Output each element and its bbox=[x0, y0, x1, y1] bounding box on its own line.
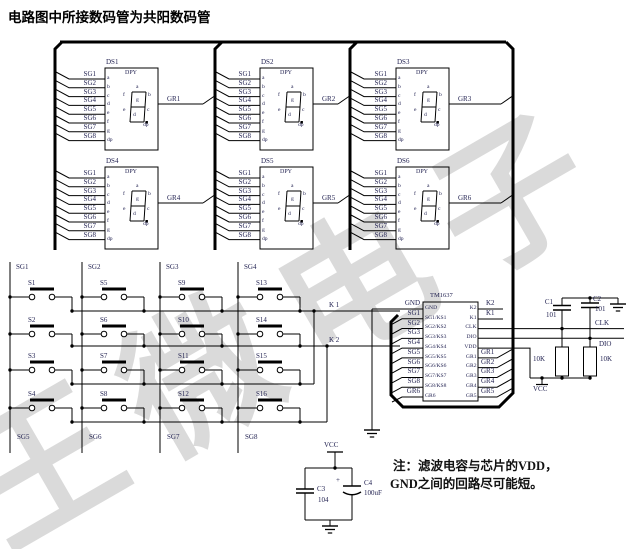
segment-letter: g bbox=[291, 197, 294, 203]
chip-pin-label-left: GND bbox=[425, 306, 437, 312]
display-pin-letter: g bbox=[262, 129, 265, 135]
chip-wire-label: GR3 bbox=[481, 368, 494, 375]
display-pin-letter: dp bbox=[262, 138, 268, 144]
sg-wire-label: SG8 bbox=[84, 232, 96, 239]
switch-label: S4 bbox=[28, 391, 35, 398]
gr-wire-label: GR4 bbox=[167, 195, 180, 202]
sg-wire-label: SG7 bbox=[375, 223, 387, 230]
segment-letter: e bbox=[123, 207, 125, 213]
sg-wire-label: SG4 bbox=[375, 97, 387, 104]
segment-letter: c bbox=[147, 108, 149, 114]
sg-wire-label: SG1 bbox=[84, 170, 96, 177]
segment-letter: e bbox=[278, 108, 280, 114]
chip-wire-label: GR6 bbox=[407, 388, 420, 395]
segment-letter: d bbox=[424, 113, 427, 119]
sg-wire-label: SG5 bbox=[84, 106, 96, 113]
segment-letter: b bbox=[439, 93, 442, 99]
display-pin-letter: d bbox=[107, 201, 110, 207]
segment-letter: f bbox=[414, 192, 416, 198]
segment-letter: d bbox=[288, 113, 291, 119]
segment-letter: c bbox=[438, 207, 440, 213]
display-pin-letter: b bbox=[398, 85, 401, 91]
switch-label: S2 bbox=[28, 317, 35, 324]
display-pin-letter: g bbox=[262, 228, 265, 234]
chip-pin-label-right: CLK bbox=[465, 325, 476, 331]
cap-designator: C4 bbox=[364, 480, 372, 487]
sg-wire-label: SG5 bbox=[375, 205, 387, 212]
segment-letter: e bbox=[123, 108, 125, 114]
keypad-col-top-label: SG3 bbox=[166, 264, 178, 271]
gr-wire-label: GR2 bbox=[322, 96, 335, 103]
vcc-label: VCC bbox=[324, 442, 338, 449]
segment-letter: c bbox=[302, 207, 304, 213]
segment-letter: a bbox=[427, 184, 429, 190]
display-pin-letter: d bbox=[107, 102, 110, 108]
segment-letter: b bbox=[439, 192, 442, 198]
chip-pin-label-left: SG1/KS1 bbox=[425, 316, 446, 322]
display-pin-letter: dp bbox=[107, 138, 113, 144]
cap-value: 104 bbox=[318, 497, 329, 504]
k1-label: K 1 bbox=[329, 302, 339, 309]
display-type-label: DPY bbox=[280, 169, 292, 175]
dio-net-label: DIO bbox=[599, 341, 611, 348]
chip-pin-label-left: SG2/KS2 bbox=[425, 325, 446, 331]
display-pin-letter: a bbox=[262, 76, 264, 82]
sg-wire-label: SG5 bbox=[375, 106, 387, 113]
display-pin-letter: g bbox=[107, 129, 110, 135]
sg-wire-label: SG4 bbox=[239, 196, 251, 203]
segment-letter: c bbox=[147, 207, 149, 213]
chip-wire-label: K2 bbox=[486, 300, 495, 307]
segment-letter: d bbox=[424, 212, 427, 218]
cap-designator: C2 bbox=[593, 296, 601, 303]
sg-wire-label: SG8 bbox=[375, 232, 387, 239]
sg-wire-label: SG1 bbox=[239, 71, 251, 78]
display-pin-letter: f bbox=[262, 120, 264, 126]
sg-wire-label: SG4 bbox=[375, 196, 387, 203]
display-pin-letter: d bbox=[262, 102, 265, 108]
segment-letter: dp bbox=[143, 123, 149, 129]
chip-wire-label: SG1 bbox=[408, 310, 420, 317]
sg-wire-label: SG3 bbox=[239, 188, 251, 195]
display-pin-letter: f bbox=[107, 219, 109, 225]
keypad-col-top-label: SG2 bbox=[88, 264, 100, 271]
display-pin-letter: f bbox=[262, 219, 264, 225]
display-pin-letter: c bbox=[398, 94, 400, 100]
sg-wire-label: SG3 bbox=[375, 188, 387, 195]
display-pin-letter: a bbox=[398, 175, 400, 181]
switch-label: S7 bbox=[100, 353, 107, 360]
chip-wire-label: SG5 bbox=[408, 349, 420, 356]
display-designator: DS1 bbox=[106, 59, 118, 66]
display-pin-letter: e bbox=[398, 111, 400, 117]
switch-label: S14 bbox=[256, 317, 267, 324]
chip-wire-label: SG4 bbox=[408, 339, 420, 346]
keypad-col-bottom-label: SG5 bbox=[17, 434, 29, 441]
segment-letter: c bbox=[302, 108, 304, 114]
keypad-col-bottom-label: SG7 bbox=[167, 434, 179, 441]
gr-wire-label: GR6 bbox=[458, 195, 471, 202]
display-pin-letter: dp bbox=[262, 237, 268, 243]
sg-wire-label: SG4 bbox=[84, 196, 96, 203]
clk-net-label: CLK bbox=[595, 320, 609, 327]
segment-letter: c bbox=[438, 108, 440, 114]
chip-wire-label: SG7 bbox=[408, 368, 420, 375]
sg-wire-label: SG3 bbox=[84, 188, 96, 195]
k2-label: K 2 bbox=[329, 337, 339, 344]
display-pin-letter: a bbox=[107, 175, 109, 181]
note-line-1: 注：滤波电容与芯片的VDD， bbox=[393, 455, 558, 474]
display-pin-letter: e bbox=[107, 111, 109, 117]
switch-label: S16 bbox=[256, 391, 267, 398]
sg-wire-label: SG4 bbox=[84, 97, 96, 104]
segment-letter: f bbox=[278, 93, 280, 99]
sg-wire-label: SG6 bbox=[239, 115, 251, 122]
switch-label: S15 bbox=[256, 353, 267, 360]
sg-wire-label: SG3 bbox=[375, 89, 387, 96]
display-pin-letter: f bbox=[398, 219, 400, 225]
sg-wire-label: SG6 bbox=[375, 115, 387, 122]
sg-wire-label: SG6 bbox=[375, 214, 387, 221]
display-pin-letter: e bbox=[398, 210, 400, 216]
sg-wire-label: SG6 bbox=[84, 214, 96, 221]
sg-wire-label: SG7 bbox=[84, 223, 96, 230]
segment-letter: e bbox=[278, 207, 280, 213]
display-pin-letter: c bbox=[107, 94, 109, 100]
switch-label: S5 bbox=[100, 280, 107, 287]
display-pin-letter: c bbox=[107, 193, 109, 199]
display-pin-letter: c bbox=[398, 193, 400, 199]
segment-letter: d bbox=[288, 212, 291, 218]
display-pin-letter: g bbox=[398, 228, 401, 234]
switch-label: S10 bbox=[178, 317, 189, 324]
display-pin-letter: e bbox=[262, 210, 264, 216]
sg-wire-label: SG1 bbox=[375, 170, 387, 177]
segment-letter: a bbox=[136, 184, 138, 190]
chip-pin-label-right: GR1 bbox=[466, 355, 477, 361]
chip-pin-label-left: GR6 bbox=[425, 394, 436, 400]
display-pin-letter: f bbox=[398, 120, 400, 126]
sg-wire-label: SG8 bbox=[375, 133, 387, 140]
chip-pin-label-left: SG6/KS6 bbox=[425, 364, 446, 370]
sg-wire-label: SG3 bbox=[239, 89, 251, 96]
chip-pin-label-right: GR3 bbox=[466, 374, 477, 380]
display-pin-letter: a bbox=[262, 175, 264, 181]
chip-pin-label-right: VDD bbox=[464, 345, 476, 351]
sg-wire-label: SG1 bbox=[84, 71, 96, 78]
cap-designator: C1 bbox=[545, 299, 553, 306]
chip-wire-label: GND bbox=[405, 300, 420, 307]
segment-letter: f bbox=[278, 192, 280, 198]
segment-letter: f bbox=[123, 93, 125, 99]
display-type-label: DPY bbox=[416, 169, 428, 175]
display-pin-letter: b bbox=[262, 184, 265, 190]
segment-letter: dp bbox=[143, 222, 149, 228]
segment-letter: g bbox=[136, 98, 139, 104]
segment-letter: f bbox=[123, 192, 125, 198]
chip-wire-label: GR5 bbox=[481, 388, 494, 395]
sg-wire-label: SG5 bbox=[239, 205, 251, 212]
segment-letter: dp bbox=[434, 222, 440, 228]
chip-wire-label: GR4 bbox=[481, 378, 494, 385]
switch-label: S9 bbox=[178, 280, 185, 287]
switch-label: S3 bbox=[28, 353, 35, 360]
sg-wire-label: SG2 bbox=[239, 80, 251, 87]
switch-label: S8 bbox=[100, 391, 107, 398]
segment-letter: dp bbox=[434, 123, 440, 129]
segment-letter: d bbox=[133, 113, 136, 119]
display-pin-letter: e bbox=[107, 210, 109, 216]
resistor-value: 10K bbox=[600, 356, 612, 363]
display-pin-letter: e bbox=[262, 111, 264, 117]
sg-wire-label: SG7 bbox=[239, 223, 251, 230]
chip-pin-label-right: GR5 bbox=[466, 394, 477, 400]
display-pin-letter: b bbox=[107, 85, 110, 91]
display-pin-letter: c bbox=[262, 193, 264, 199]
vcc-label: VCC bbox=[533, 386, 547, 393]
segment-letter: e bbox=[414, 108, 416, 114]
keypad-col-bottom-label: SG6 bbox=[89, 434, 101, 441]
segment-letter: d bbox=[133, 212, 136, 218]
segment-letter: dp bbox=[298, 123, 304, 129]
display-pin-letter: d bbox=[398, 102, 401, 108]
switch-label: S1 bbox=[28, 280, 35, 287]
chip-wire-label: K1 bbox=[486, 310, 495, 317]
segment-letter: b bbox=[303, 93, 306, 99]
display-type-label: DPY bbox=[125, 70, 137, 76]
switch-label: S12 bbox=[178, 391, 189, 398]
sg-wire-label: SG1 bbox=[375, 71, 387, 78]
display-designator: DS2 bbox=[261, 59, 273, 66]
chip-pin-label-left: SG5/KS5 bbox=[425, 355, 446, 361]
keypad-col-top-label: SG1 bbox=[16, 264, 28, 271]
display-type-label: DPY bbox=[280, 70, 292, 76]
chip-pin-label-left: SG3/KS3 bbox=[425, 335, 446, 341]
segment-letter: e bbox=[414, 207, 416, 213]
chip-pin-label-right: K1 bbox=[470, 316, 477, 322]
switch-label: S11 bbox=[178, 353, 189, 360]
segment-letter: b bbox=[148, 192, 151, 198]
display-pin-letter: g bbox=[398, 129, 401, 135]
switch-label: S13 bbox=[256, 280, 267, 287]
sg-wire-label: SG2 bbox=[239, 179, 251, 186]
segment-letter: a bbox=[291, 184, 293, 190]
chip-wire-label: SG3 bbox=[408, 329, 420, 336]
display-pin-letter: dp bbox=[398, 138, 404, 144]
sg-wire-label: SG2 bbox=[375, 80, 387, 87]
note-line-2: GND之间的回路尽可能短。 bbox=[390, 473, 543, 492]
chip-wire-label: GR2 bbox=[481, 359, 494, 366]
resistor-value: 10K bbox=[533, 356, 545, 363]
display-pin-letter: b bbox=[262, 85, 265, 91]
display-pin-letter: c bbox=[262, 94, 264, 100]
segment-letter: dp bbox=[298, 222, 304, 228]
segment-letter: a bbox=[136, 85, 138, 91]
display-designator: DS6 bbox=[397, 158, 409, 165]
sg-wire-label: SG4 bbox=[239, 97, 251, 104]
display-pin-letter: f bbox=[107, 120, 109, 126]
sg-wire-label: SG6 bbox=[84, 115, 96, 122]
segment-letter: b bbox=[303, 192, 306, 198]
display-pin-letter: b bbox=[398, 184, 401, 190]
chip-pin-label-left: SG4/KS4 bbox=[425, 345, 446, 351]
sg-wire-label: SG8 bbox=[239, 232, 251, 239]
chip-wire-label: SG6 bbox=[408, 359, 420, 366]
sg-wire-label: SG8 bbox=[239, 133, 251, 140]
chip-name: TM1637 bbox=[430, 293, 453, 300]
display-designator: DS3 bbox=[397, 59, 409, 66]
display-pin-letter: b bbox=[107, 184, 110, 190]
keypad-col-bottom-label: SG8 bbox=[245, 434, 257, 441]
sg-wire-label: SG6 bbox=[239, 214, 251, 221]
sg-wire-label: SG7 bbox=[84, 124, 96, 131]
chip-pin-label-right: DIO bbox=[467, 335, 477, 341]
sg-wire-label: SG3 bbox=[84, 89, 96, 96]
display-pin-letter: d bbox=[398, 201, 401, 207]
display-designator: DS5 bbox=[261, 158, 273, 165]
sg-wire-label: SG7 bbox=[239, 124, 251, 131]
polarity-plus: + bbox=[336, 477, 340, 484]
display-pin-letter: d bbox=[262, 201, 265, 207]
sg-wire-label: SG7 bbox=[375, 124, 387, 131]
segment-letter: f bbox=[414, 93, 416, 99]
display-pin-letter: g bbox=[107, 228, 110, 234]
sg-wire-label: SG8 bbox=[84, 133, 96, 140]
sg-wire-label: SG1 bbox=[239, 170, 251, 177]
segment-letter: b bbox=[148, 93, 151, 99]
display-type-label: DPY bbox=[125, 169, 137, 175]
sg-wire-label: SG2 bbox=[84, 80, 96, 87]
sg-wire-label: SG5 bbox=[84, 205, 96, 212]
chip-pin-label-right: GR4 bbox=[466, 384, 477, 390]
display-type-label: DPY bbox=[416, 70, 428, 76]
switch-label: S6 bbox=[100, 317, 107, 324]
chip-wire-label: SG2 bbox=[408, 320, 420, 327]
gr-wire-label: GR5 bbox=[322, 195, 335, 202]
chip-wire-label: SG8 bbox=[408, 378, 420, 385]
cap-value: 101 bbox=[595, 306, 606, 313]
display-pin-letter: a bbox=[107, 76, 109, 82]
segment-letter: a bbox=[291, 85, 293, 91]
chip-pin-label-right: GR2 bbox=[466, 364, 477, 370]
segment-letter: g bbox=[427, 98, 430, 104]
segment-letter: a bbox=[427, 85, 429, 91]
sg-wire-label: SG2 bbox=[84, 179, 96, 186]
page-title: 电路图中所接数码管为共阳数码管 bbox=[8, 6, 211, 26]
sg-wire-label: SG5 bbox=[239, 106, 251, 113]
cap-value: 101 bbox=[546, 312, 557, 319]
gr-wire-label: GR3 bbox=[458, 96, 471, 103]
display-pin-letter: dp bbox=[107, 237, 113, 243]
chip-pin-label-left: SG7/KS7 bbox=[425, 374, 446, 380]
cap-designator: C3 bbox=[317, 486, 325, 493]
chip-pin-label-right: K2 bbox=[470, 306, 477, 312]
chip-wire-label: GR1 bbox=[481, 349, 494, 356]
segment-letter: g bbox=[427, 197, 430, 203]
keypad-col-top-label: SG4 bbox=[244, 264, 256, 271]
segment-letter: g bbox=[291, 98, 294, 104]
cap-value: 100uF bbox=[364, 490, 382, 497]
gr-wire-label: GR1 bbox=[167, 96, 180, 103]
chip-pin-label-left: SG8/KS8 bbox=[425, 384, 446, 390]
sg-wire-label: SG2 bbox=[375, 179, 387, 186]
schematic-canvas: 王微电子 DS1DPYSG1aSG2bSG3cSG4dSG5eSG6fSG7gS… bbox=[0, 0, 630, 549]
display-pin-letter: dp bbox=[398, 237, 404, 243]
segment-letter: g bbox=[136, 197, 139, 203]
display-pin-letter: a bbox=[398, 76, 400, 82]
display-designator: DS4 bbox=[106, 158, 118, 165]
